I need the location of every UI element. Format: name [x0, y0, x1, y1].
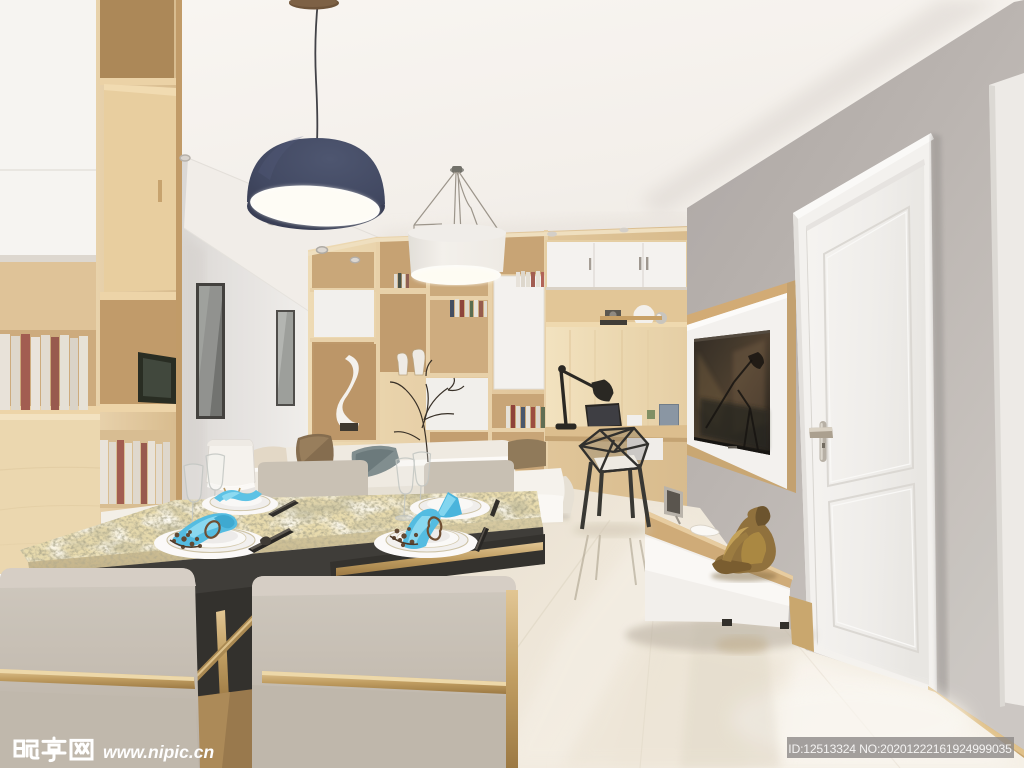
- svg-text:ID:12513324 NO:202012221619249: ID:12513324 NO:20201222161924999035: [788, 742, 1012, 756]
- svg-text:www.nipic.cn: www.nipic.cn: [103, 742, 214, 762]
